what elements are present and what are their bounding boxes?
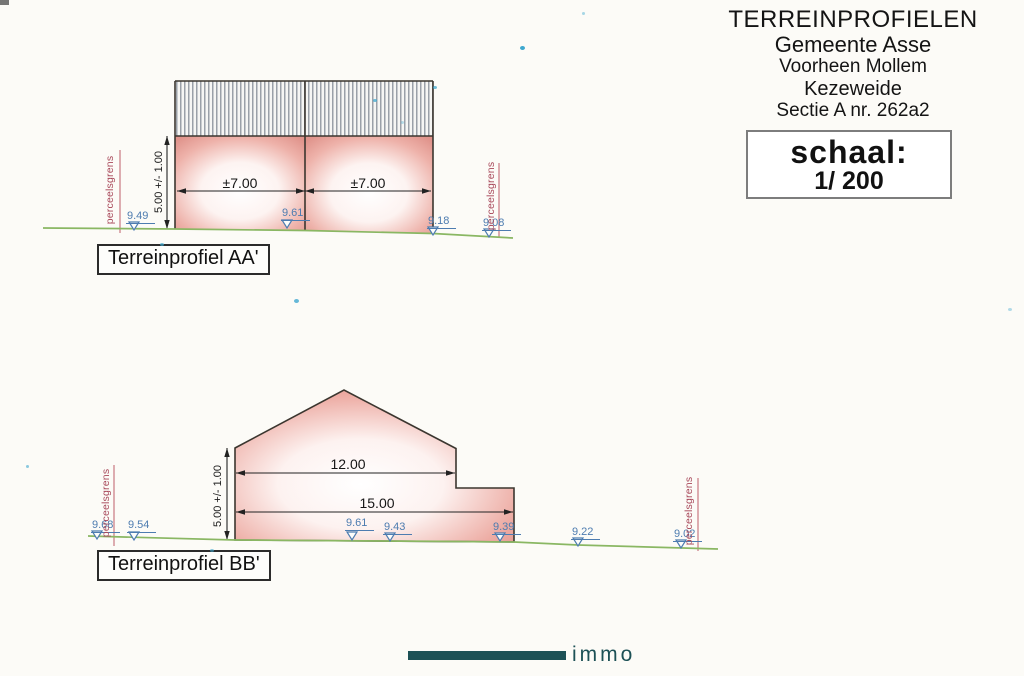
scan-speck bbox=[1008, 308, 1012, 311]
bb-height-dim: 5.00 +/- 1.00 bbox=[212, 465, 224, 527]
bb-height-dimension-line bbox=[224, 448, 229, 540]
scan-speck bbox=[294, 299, 299, 303]
aa-parcel-label-left: perceelsgrens bbox=[104, 156, 116, 225]
scale-value: 1/ 200 bbox=[814, 168, 884, 194]
bb-elevation-3: 9.61 bbox=[345, 517, 374, 531]
bb-parcel-label-right: perceelsgrens bbox=[683, 477, 695, 546]
scale-box: schaal: 1/ 200 bbox=[746, 130, 952, 199]
bb-elevation-5: 9.39 bbox=[492, 521, 521, 535]
logo-bar bbox=[408, 651, 566, 660]
aa-profile-title: Terreinprofiel AA' bbox=[97, 244, 270, 275]
scale-label: schaal: bbox=[790, 136, 907, 168]
aa-height-dimension-line bbox=[164, 136, 169, 229]
profile-bb-building bbox=[235, 390, 514, 542]
aa-width-dim-left: ±7.00 bbox=[223, 175, 258, 191]
bb-width-dim-lower: 15.00 bbox=[359, 495, 394, 511]
aa-roof-hatch bbox=[175, 81, 433, 136]
scan-speck bbox=[582, 12, 585, 15]
former-municipality: Voorheen Mollem bbox=[700, 56, 1006, 78]
scan-speck bbox=[210, 549, 214, 552]
logo-text: immo bbox=[572, 643, 635, 667]
aa-elevation-1: 9.49 bbox=[126, 210, 155, 224]
bb-elevation-6: 9.22 bbox=[571, 526, 600, 540]
aa-parcel-label-right: perceelsgrens bbox=[485, 162, 497, 231]
aa-elevation-3: 9.18 bbox=[427, 215, 456, 229]
title-block: TERREINPROFIELEN Gemeente Asse Voorheen … bbox=[700, 6, 1006, 122]
scan-corner-mark bbox=[0, 0, 9, 5]
scan-speck bbox=[433, 86, 437, 89]
scan-speck bbox=[160, 243, 164, 246]
scan-speck bbox=[373, 99, 377, 102]
aa-width-dim-right: ±7.00 bbox=[351, 175, 386, 191]
bb-profile-title: Terreinprofiel BB' bbox=[97, 550, 271, 581]
sheet-title: TERREINPROFIELEN bbox=[700, 6, 1006, 33]
bb-width-dim-upper: 12.00 bbox=[330, 456, 365, 472]
terrain-profile-sheet: TERREINPROFIELEN Gemeente Asse Voorheen … bbox=[0, 0, 1024, 676]
bb-building-shape bbox=[235, 390, 514, 542]
aa-height-dim: 5.00 +/- 1.00 bbox=[153, 151, 165, 213]
scan-speck bbox=[26, 465, 29, 468]
municipality: Gemeente Asse bbox=[700, 33, 1006, 56]
aa-ground-line bbox=[43, 228, 513, 238]
bb-elevation-2: 9.54 bbox=[127, 519, 156, 533]
section-parcel: Sectie A nr. 262a2 bbox=[700, 100, 1006, 122]
aa-elevation-2: 9.61 bbox=[281, 207, 310, 221]
bb-elevation-4: 9.43 bbox=[383, 521, 412, 535]
scan-speck bbox=[520, 46, 525, 50]
bb-parcel-label-left: perceelsgrens bbox=[100, 469, 112, 538]
locality: Kezeweide bbox=[700, 78, 1006, 100]
scan-speck bbox=[401, 121, 404, 124]
